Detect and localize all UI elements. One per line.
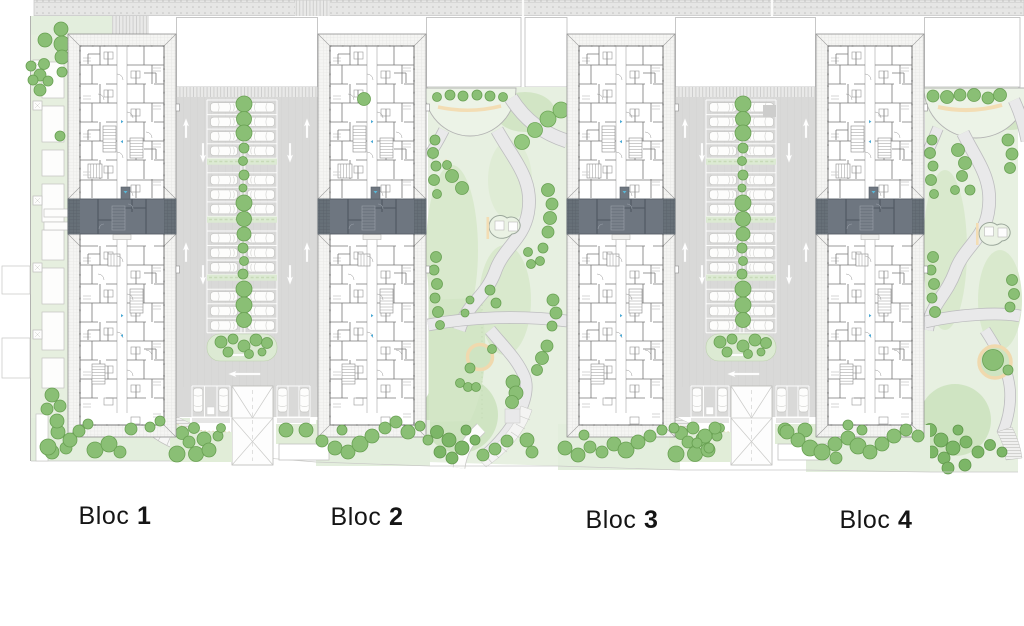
svg-text:Bloc 1: Bloc 1 (78, 502, 151, 530)
svg-text:Bloc 2: Bloc 2 (330, 503, 403, 531)
svg-text:Bloc 4: Bloc 4 (839, 506, 912, 534)
svg-text:Bloc 3: Bloc 3 (585, 506, 658, 534)
